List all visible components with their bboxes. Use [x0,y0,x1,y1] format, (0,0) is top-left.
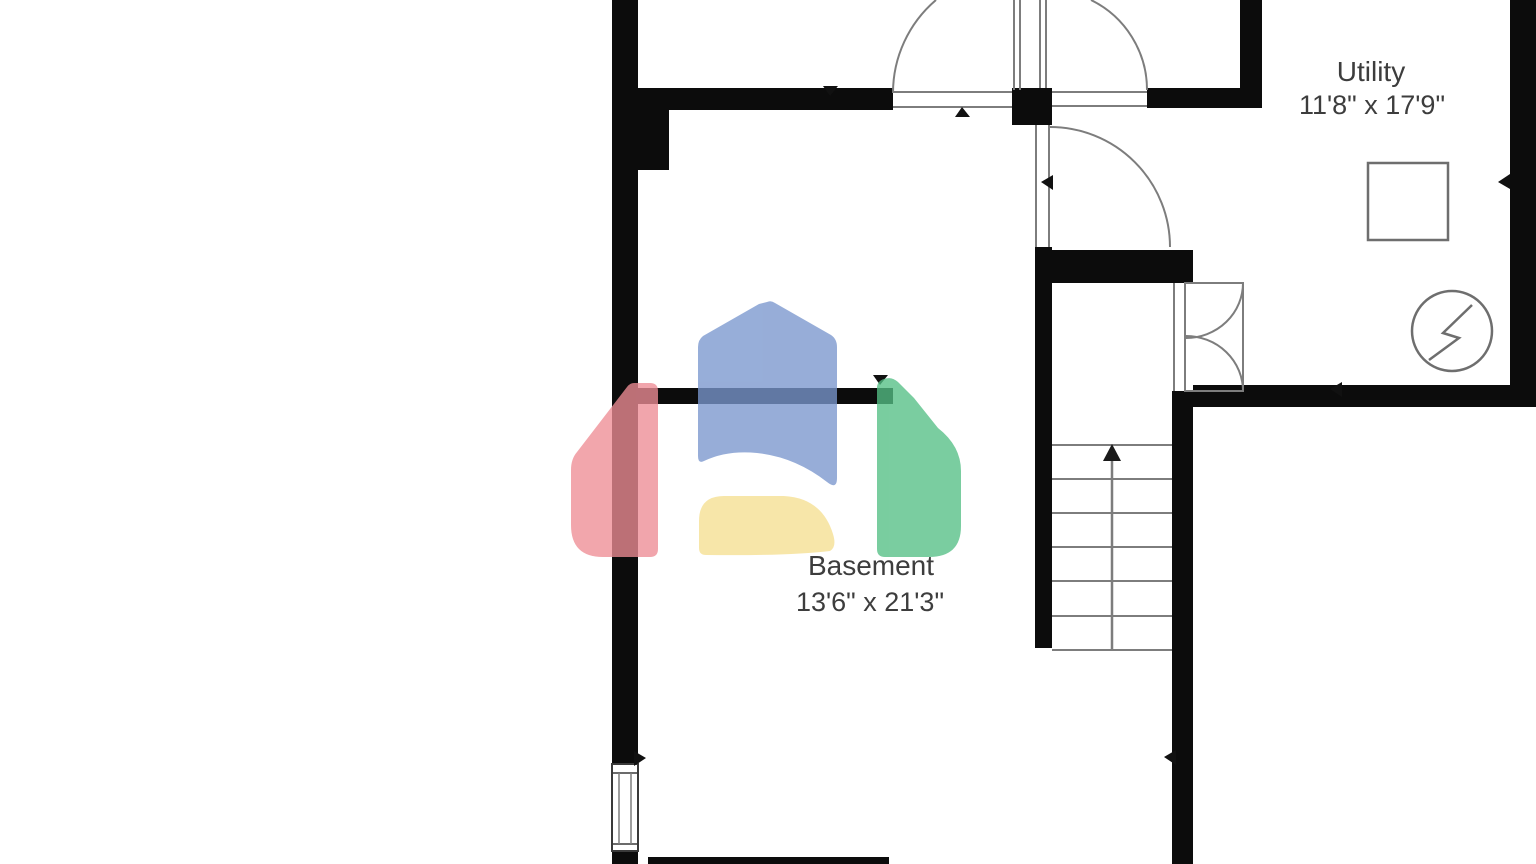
floor-plan: Utility 11'8" x 17'9" Basement 13'6" x 2… [0,0,1536,864]
window-frame [612,764,638,851]
tick-right-icon [634,751,646,766]
wall-bottom-edge [648,857,889,864]
utility-room-name: Utility [1337,56,1405,87]
wall-stairs-left [1035,247,1052,648]
tick-left-icon [1498,174,1510,189]
floor-plan-page: Utility 11'8" x 17'9" Basement 13'6" x 2… [0,0,1536,864]
logo-red-house-icon [571,383,658,557]
wall-landing [1035,250,1190,283]
window-symbol [612,764,638,851]
tick-left-icon [1164,750,1176,765]
basement-room-label: Basement 13'6" x 21'3" [796,550,944,617]
wall-left-stub-below-window [612,850,638,864]
logo-blue-house-icon [698,301,837,485]
door-arc-top-1 [893,0,936,93]
utility-room-label: Utility 11'8" x 17'9" [1299,56,1445,120]
wall-top-bump [636,108,669,170]
wall-stub-top-doors [1012,88,1052,125]
door-arc-3 [1050,127,1170,247]
double-door-arc-top [1186,283,1243,338]
utility-room-dimensions: 11'8" x 17'9" [1299,90,1445,120]
door-arc-top-2 [1091,0,1147,90]
wall-utility-bottom [1190,385,1536,407]
utility-box-icon [1368,163,1448,240]
stair-up-arrow-icon [1103,444,1121,461]
fixtures [1368,163,1492,371]
double-door-arc-bottom [1186,336,1243,391]
basement-room-name: Basement [808,550,934,581]
wall-top [612,88,893,110]
tick-left-icon [1041,175,1053,190]
logo-green-house-icon [877,378,961,557]
wall-right [1510,0,1536,407]
logo-yellow-house-icon [699,496,834,555]
wall-left [612,0,638,765]
electrical-symbol-icon [1412,291,1492,371]
basement-room-dimensions: 13'6" x 21'3" [796,587,944,617]
stairs [1052,445,1172,650]
wall-stairs-right [1172,391,1193,864]
wall-top-right-stub [1240,0,1262,92]
